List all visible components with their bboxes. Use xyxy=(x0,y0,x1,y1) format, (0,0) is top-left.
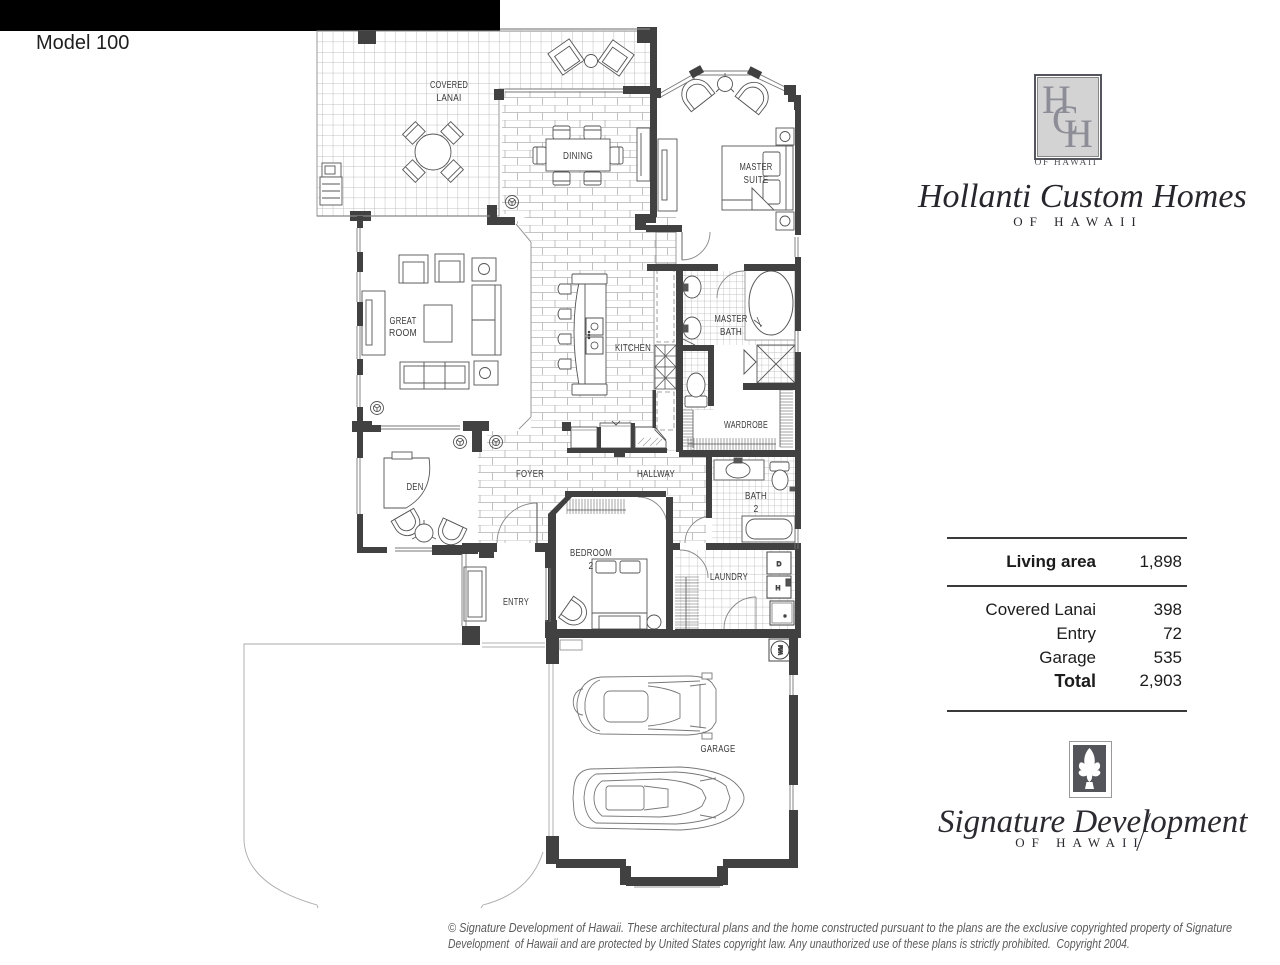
svg-text:WM: WM xyxy=(779,645,785,655)
svg-text:KITCHEN: KITCHEN xyxy=(615,343,651,354)
svg-text:2: 2 xyxy=(589,561,594,572)
svg-text:FOYER: FOYER xyxy=(516,469,544,480)
svg-text:BEDROOM: BEDROOM xyxy=(570,548,612,559)
svg-text:BATH: BATH xyxy=(720,327,742,338)
svg-text:2: 2 xyxy=(754,504,759,515)
svg-text:COVERED: COVERED xyxy=(430,80,468,91)
svg-text:DEN: DEN xyxy=(407,482,424,493)
svg-text:WARDROBE: WARDROBE xyxy=(724,420,768,431)
svg-text:ENTRY: ENTRY xyxy=(503,597,529,608)
svg-text:ROOM: ROOM xyxy=(389,328,417,339)
svg-text:DINING: DINING xyxy=(563,151,593,162)
svg-text:HALLWAY: HALLWAY xyxy=(637,469,675,480)
svg-text:GARAGE: GARAGE xyxy=(701,744,736,755)
svg-text:D: D xyxy=(777,561,782,568)
svg-text:H: H xyxy=(776,585,781,592)
svg-text:BATH: BATH xyxy=(745,491,767,502)
svg-text:GREAT: GREAT xyxy=(390,316,417,327)
svg-text:LANAI: LANAI xyxy=(437,93,462,104)
svg-text:MASTER: MASTER xyxy=(715,314,748,325)
svg-text:MASTER: MASTER xyxy=(740,162,773,173)
svg-text:SUITE: SUITE xyxy=(744,175,769,186)
svg-text:LAUNDRY: LAUNDRY xyxy=(710,572,748,583)
